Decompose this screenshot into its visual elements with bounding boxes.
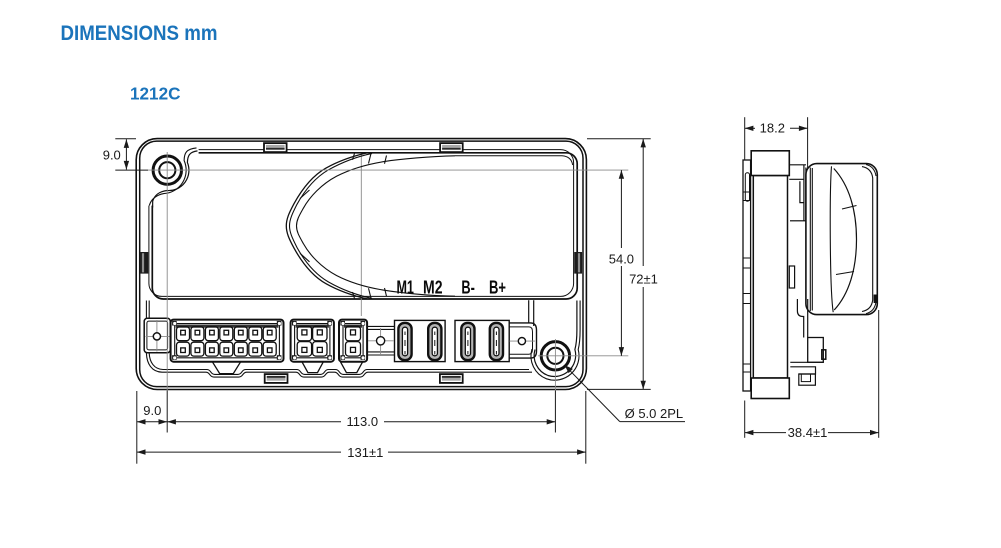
svg-text:B+: B+ xyxy=(489,277,506,297)
svg-text:B-: B- xyxy=(461,277,475,297)
svg-text:9.0: 9.0 xyxy=(143,403,161,418)
svg-text:38.4±1: 38.4±1 xyxy=(788,425,828,440)
svg-text:1212C: 1212C xyxy=(130,83,181,103)
svg-text:M1: M1 xyxy=(396,277,414,297)
svg-text:M2: M2 xyxy=(423,277,443,297)
svg-text:54.0: 54.0 xyxy=(609,252,634,267)
svg-text:131±1: 131±1 xyxy=(347,445,383,460)
svg-text:DIMENSIONS mm: DIMENSIONS mm xyxy=(61,21,218,45)
svg-text:Ø 5.0 2PL: Ø 5.0 2PL xyxy=(625,406,684,421)
svg-text:18.2: 18.2 xyxy=(760,120,785,135)
svg-text:113.0: 113.0 xyxy=(347,414,379,429)
svg-text:72±1: 72±1 xyxy=(629,271,658,286)
svg-text:9.0: 9.0 xyxy=(103,148,121,163)
